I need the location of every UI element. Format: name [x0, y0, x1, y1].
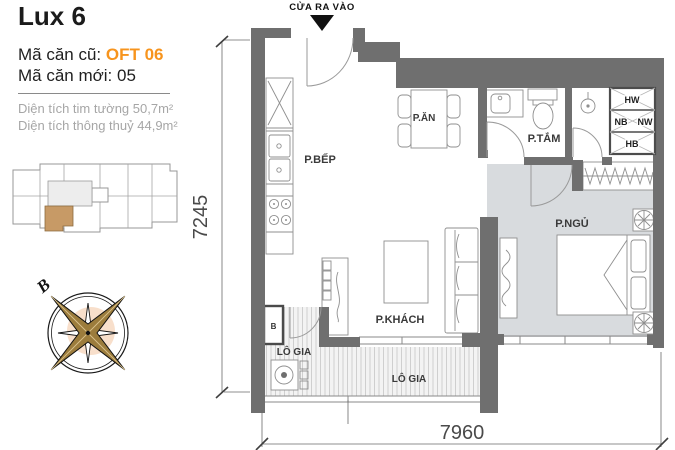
plant-corner-bottom	[633, 312, 655, 334]
entrance-arrow-icon	[310, 15, 334, 31]
bedroom-window	[498, 336, 653, 344]
bed	[557, 235, 650, 315]
floorplan-page: Lux 6 Mã căn cũ: OFT 06 Mã căn mới: 05 D…	[0, 0, 675, 450]
utility-box: B	[264, 306, 283, 344]
room-label-living: P.KHÁCH	[376, 313, 425, 326]
key-plan-floor-block	[48, 181, 92, 206]
pillow	[631, 240, 646, 272]
bathroom-fixtures	[486, 89, 595, 129]
dining-chair	[447, 124, 460, 147]
compass-rose: B	[32, 275, 128, 373]
shaft-label-hb: HB	[626, 139, 639, 149]
sofa	[445, 228, 478, 333]
coffee-table	[384, 241, 428, 303]
dining-chair	[447, 95, 460, 118]
dining-chair	[398, 95, 411, 118]
entrance-label: CỬA RA VÀO	[289, 1, 354, 13]
room-label-loggia-bottom: LÔ GIA	[392, 372, 426, 385]
shaft-box: HW NB NW HB	[610, 88, 655, 154]
room-label-dining: P.ĂN	[413, 111, 436, 124]
entrance-door	[307, 38, 353, 86]
shaft-label-hw: HW	[625, 95, 640, 105]
dimension-bottom-value: 7960	[440, 422, 485, 444]
compass-north-label: B	[32, 275, 54, 297]
room-label-kitchen: P.BẾP	[304, 153, 336, 166]
dimension-left: 7245	[190, 36, 250, 398]
floor-plan-drawing: B	[0, 0, 675, 450]
shaft-label-nw: NW	[638, 117, 653, 127]
bath-sink	[491, 94, 510, 113]
bathroom-door	[487, 122, 524, 157]
shower	[581, 92, 595, 113]
key-plan	[13, 164, 177, 232]
loggia-bottom-floor	[319, 347, 480, 396]
utility-box-label: B	[271, 322, 277, 331]
shower-door	[573, 128, 602, 157]
plant-corner-top	[633, 209, 655, 231]
toilet	[528, 89, 557, 129]
loggia-railing	[264, 396, 480, 402]
washing-machine	[271, 360, 298, 390]
kitchen-counter	[266, 78, 293, 254]
room-label-bathroom: P.TẮM	[528, 132, 561, 145]
dimension-left-value: 7245	[190, 195, 212, 240]
bedroom-console	[500, 238, 517, 318]
shaft-label-nb: NB	[615, 117, 628, 127]
room-label-loggia-left: LÔ GIA	[277, 345, 311, 358]
dining-chair	[398, 124, 411, 147]
room-label-bedroom: P.NGỦ	[555, 217, 588, 230]
wardrobe	[583, 162, 655, 190]
living-loggia-window	[359, 337, 462, 344]
pillow	[631, 277, 646, 309]
entrance-marker: CỬA RA VÀO	[289, 1, 354, 31]
